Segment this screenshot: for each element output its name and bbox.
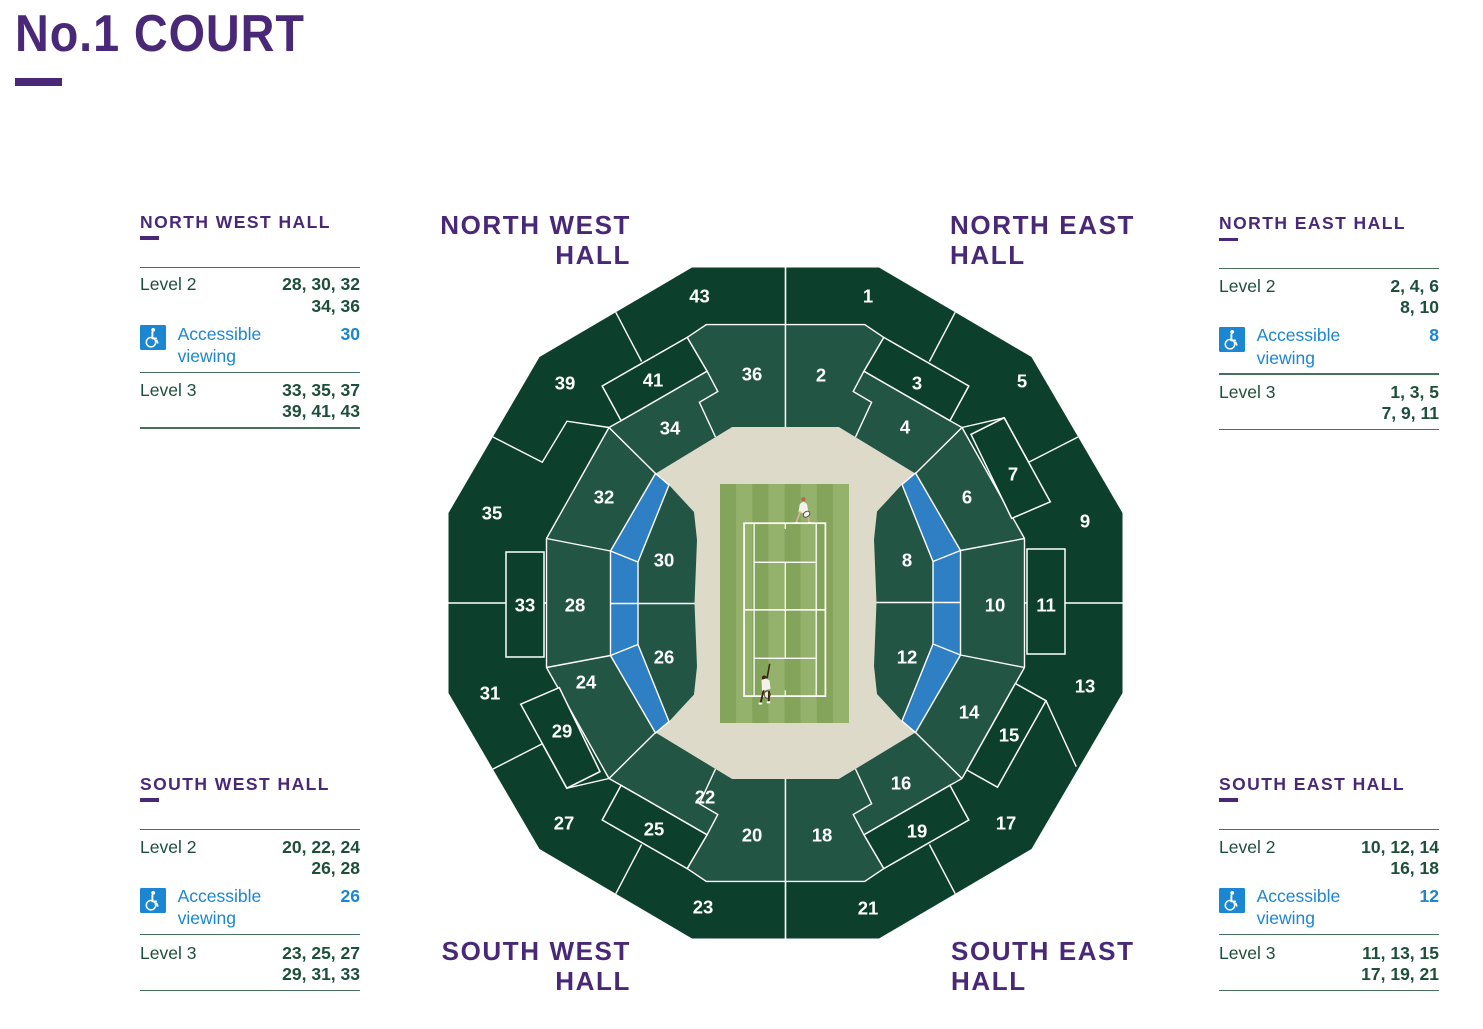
svg-text:29: 29 (552, 720, 573, 741)
svg-text:16: 16 (891, 772, 912, 793)
svg-text:3: 3 (912, 372, 922, 393)
svg-text:21: 21 (858, 897, 879, 918)
svg-text:34: 34 (660, 417, 681, 438)
svg-text:41: 41 (643, 369, 664, 390)
svg-text:30: 30 (654, 549, 675, 570)
svg-text:13: 13 (1075, 675, 1096, 696)
svg-text:4: 4 (900, 416, 911, 437)
svg-text:8: 8 (902, 549, 912, 570)
svg-text:22: 22 (695, 786, 716, 807)
svg-text:24: 24 (576, 671, 597, 692)
svg-text:43: 43 (689, 285, 710, 306)
svg-text:26: 26 (654, 646, 675, 667)
svg-text:36: 36 (742, 363, 763, 384)
svg-text:15: 15 (999, 724, 1020, 745)
svg-text:23: 23 (693, 896, 714, 917)
svg-text:19: 19 (907, 820, 928, 841)
svg-text:39: 39 (555, 372, 576, 393)
svg-text:9: 9 (1080, 510, 1090, 531)
svg-text:27: 27 (554, 812, 575, 833)
svg-text:12: 12 (897, 646, 918, 667)
svg-text:10: 10 (985, 594, 1006, 615)
svg-text:2: 2 (816, 364, 826, 385)
svg-text:28: 28 (565, 594, 586, 615)
svg-text:1: 1 (863, 285, 873, 306)
svg-text:6: 6 (962, 486, 972, 507)
svg-text:35: 35 (482, 502, 503, 523)
svg-text:25: 25 (644, 818, 665, 839)
svg-text:33: 33 (515, 594, 536, 615)
svg-text:20: 20 (742, 824, 763, 845)
svg-text:5: 5 (1017, 370, 1027, 391)
svg-text:11: 11 (1036, 594, 1056, 615)
svg-text:7: 7 (1008, 463, 1018, 484)
svg-text:18: 18 (812, 824, 833, 845)
svg-text:32: 32 (594, 486, 615, 507)
svg-text:14: 14 (959, 701, 980, 722)
svg-text:31: 31 (480, 682, 501, 703)
svg-text:17: 17 (996, 812, 1017, 833)
